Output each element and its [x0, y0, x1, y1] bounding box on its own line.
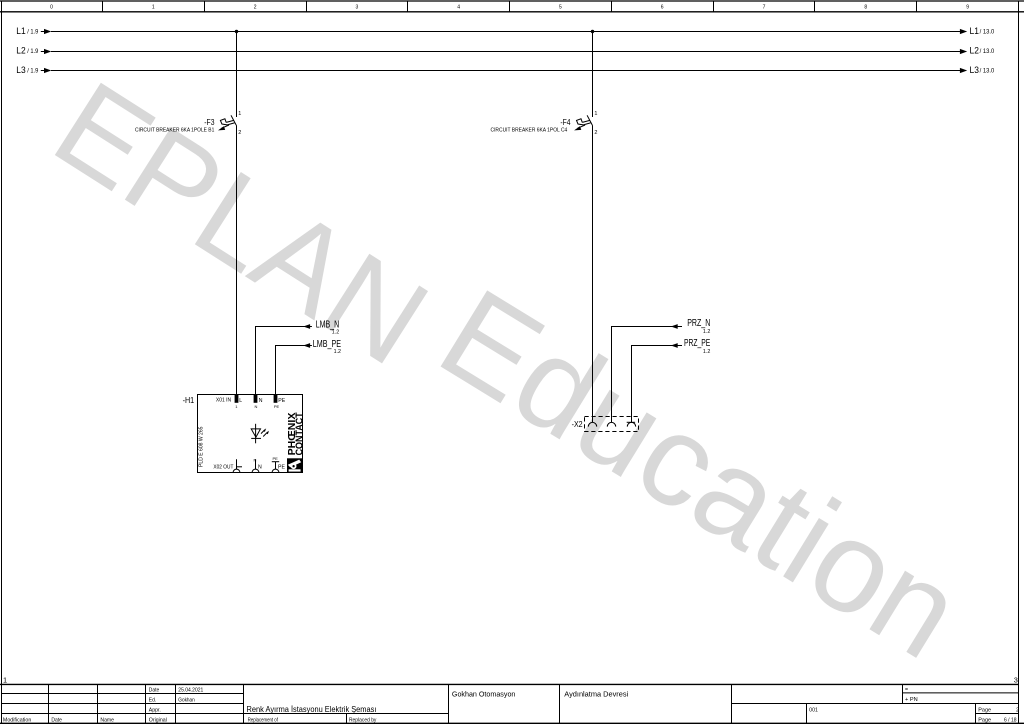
svg-text:Date: Date — [149, 688, 160, 694]
svg-text:3: 3 — [356, 5, 359, 11]
svg-text:X02 OUT: X02 OUT — [213, 464, 234, 470]
svg-text:L2: L2 — [970, 46, 979, 56]
svg-text:PRZ_N: PRZ_N — [687, 318, 710, 329]
svg-text:/ 13.0: / 13.0 — [980, 49, 995, 55]
svg-text:L: L — [239, 398, 242, 404]
svg-text:1.2: 1.2 — [334, 349, 341, 355]
svg-text:Ed.: Ed. — [149, 698, 157, 704]
svg-text:PE: PE — [274, 404, 280, 409]
svg-text:L1: L1 — [970, 26, 979, 36]
svg-text:L3: L3 — [16, 65, 25, 75]
svg-text:N: N — [254, 458, 257, 463]
svg-text:Page: Page — [978, 708, 991, 714]
svg-text:Gokhan Otomasyon: Gokhan Otomasyon — [452, 692, 516, 699]
svg-text:1: 1 — [594, 111, 597, 117]
svg-text:PE: PE — [278, 465, 285, 471]
svg-text:CIRCUIT BREAKER 6KA 1POL C4: CIRCUIT BREAKER 6KA 1POL C4 — [491, 128, 568, 134]
svg-text:1.2: 1.2 — [332, 329, 339, 335]
svg-text:N: N — [259, 398, 263, 404]
svg-text:/ 13.0: / 13.0 — [980, 30, 995, 36]
svg-text:N: N — [255, 404, 258, 409]
svg-text:0: 0 — [50, 5, 53, 11]
svg-text:Appr.: Appr. — [149, 708, 161, 714]
svg-text:Aydınlatma Devresi: Aydınlatma Devresi — [564, 692, 628, 699]
svg-text:Replaced by: Replaced by — [349, 718, 377, 724]
svg-text:N: N — [258, 465, 262, 471]
svg-text:5: 5 — [559, 5, 562, 11]
svg-text:Gokhan: Gokhan — [178, 698, 195, 704]
svg-text:/ 13.0: / 13.0 — [980, 69, 995, 75]
svg-text:Name: Name — [100, 718, 114, 724]
svg-text:/ 1.9: / 1.9 — [27, 30, 39, 36]
svg-text:4: 4 — [457, 5, 460, 11]
svg-text:2: 2 — [594, 130, 597, 136]
svg-text:+ PN: + PN — [905, 697, 918, 703]
svg-text:=: = — [905, 687, 908, 693]
svg-text:-F4: -F4 — [560, 117, 570, 127]
svg-text:Page: Page — [978, 718, 991, 724]
svg-text:001: 001 — [809, 708, 818, 714]
svg-text:L3: L3 — [970, 65, 979, 75]
svg-text:-F3: -F3 — [204, 117, 214, 127]
svg-text:PE: PE — [278, 398, 285, 404]
svg-text:25.04.2021: 25.04.2021 — [178, 688, 203, 694]
svg-text:9: 9 — [966, 5, 969, 11]
svg-text:/ 1.9: / 1.9 — [27, 69, 39, 75]
svg-text:Original: Original — [149, 718, 167, 724]
svg-text:/ 1.9: / 1.9 — [27, 49, 39, 55]
svg-text:1: 1 — [152, 5, 155, 11]
svg-text:6: 6 — [661, 5, 664, 11]
svg-text:Renk Ayırma İstasyonu Elektrik: Renk Ayırma İstasyonu Elektrik Şeması — [247, 705, 377, 714]
svg-text:3: 3 — [1014, 675, 1018, 684]
svg-text:1.2: 1.2 — [703, 349, 710, 355]
svg-text:X01 IN: X01 IN — [216, 398, 231, 404]
svg-text:PLD E 608 W 265: PLD E 608 W 265 — [198, 426, 204, 467]
svg-text:2: 2 — [1016, 708, 1019, 714]
svg-text:Modification: Modification — [3, 718, 32, 724]
svg-text:1: 1 — [238, 111, 241, 117]
svg-text:1: 1 — [3, 675, 7, 684]
svg-text:PRZ_PE: PRZ_PE — [684, 338, 711, 349]
svg-text:L1: L1 — [16, 26, 25, 36]
svg-text:6 / 18: 6 / 18 — [1004, 718, 1017, 724]
svg-text:L2: L2 — [16, 46, 25, 56]
svg-text:8: 8 — [864, 5, 867, 11]
svg-text:CONTACT: CONTACT — [295, 412, 306, 455]
svg-text:7: 7 — [763, 5, 766, 11]
svg-text:1.2: 1.2 — [703, 329, 710, 335]
svg-text:-H1: -H1 — [183, 395, 195, 405]
svg-text:-X2: -X2 — [572, 419, 583, 429]
svg-text:Date: Date — [51, 718, 62, 724]
svg-text:PE: PE — [273, 456, 279, 461]
svg-text:2: 2 — [254, 5, 257, 11]
svg-text:CIRCUIT BREAKER 6KA 1POLE B1: CIRCUIT BREAKER 6KA 1POLE B1 — [135, 128, 214, 134]
svg-text:2: 2 — [238, 130, 241, 136]
svg-text:Replacement of: Replacement of — [248, 718, 279, 724]
